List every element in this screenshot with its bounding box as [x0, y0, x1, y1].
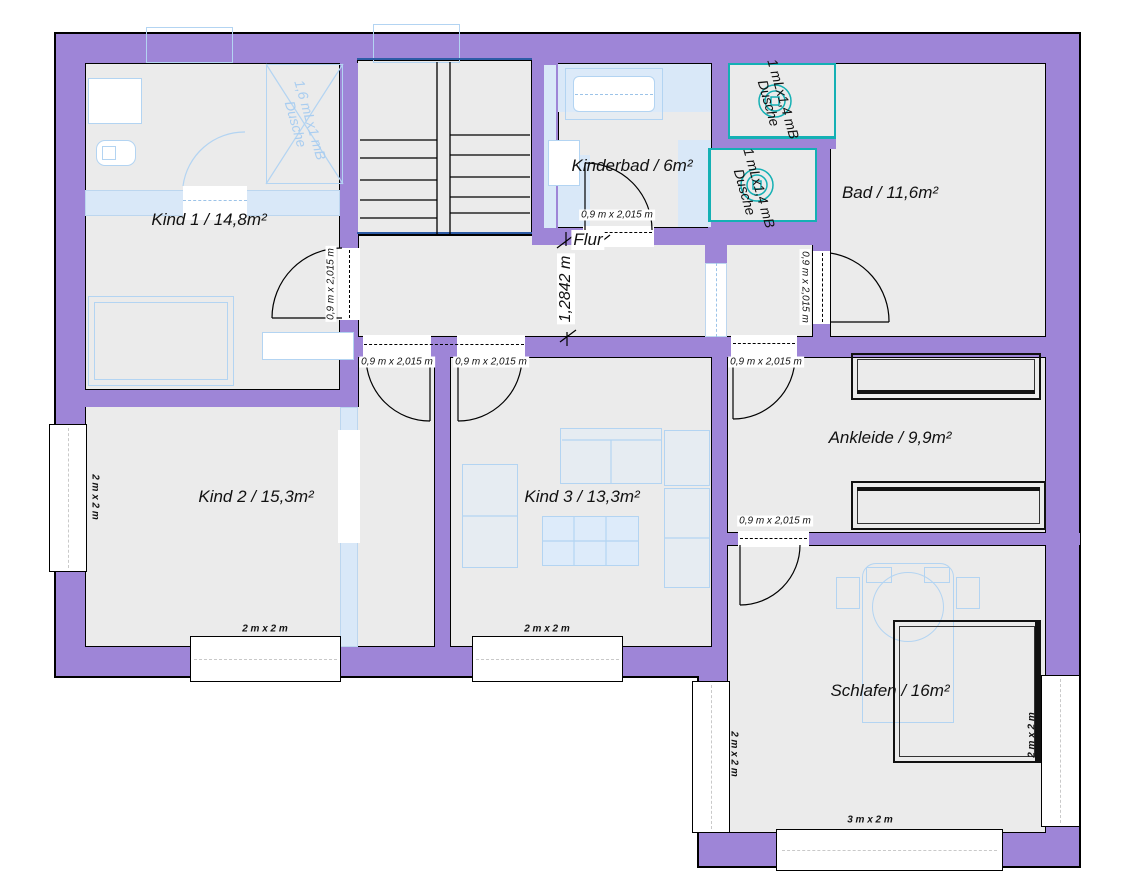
window-size-label: 2 m x 2 m [242, 624, 288, 635]
room-label-schlafen: Schlafen / 16m² [830, 681, 949, 701]
door-size-label: 0,9 m x 2,015 m [453, 357, 529, 368]
window-size-label: 2 m x 2 m [729, 731, 740, 777]
door-size-label: 0,9 m x 2,015 m [579, 210, 655, 221]
room-label-kind1: Kind 1 / 14,8m² [151, 210, 266, 230]
room-label-kind3: Kind 3 / 13,3m² [524, 487, 639, 507]
room-label-ankleide: Ankleide / 9,9m² [829, 428, 952, 448]
room-label-kind2: Kind 2 / 15,3m² [198, 487, 313, 507]
door-size-label: 0,9 m x 2,015 m [800, 249, 811, 325]
room-label-bad: Bad / 11,6m² [842, 183, 938, 203]
door-size-label: 0,9 m x 2,015 m [737, 516, 813, 527]
window-size-label: 2 m x 2 m [1027, 712, 1038, 758]
door-size-label: 0,9 m x 2,015 m [728, 357, 804, 368]
floor-plan: Kind 1 / 14,8m² Kinderbad / 6m² Bad / 11… [0, 0, 1137, 891]
window-size-label: 3 m x 2 m [847, 815, 893, 826]
window-size-label: 2 m x 2 m [90, 474, 101, 520]
door-size-label: 0,9 m x 2,015 m [326, 246, 337, 322]
window-size-label: 2 m x 2 m [524, 624, 570, 635]
flur-width-dimension: 1,2842 m [557, 254, 575, 325]
room-label-flur: Flur [571, 230, 604, 250]
room-label-kinderbad: Kinderbad / 6m² [572, 156, 693, 176]
linework [0, 0, 1137, 891]
door-size-label: 0,9 m x 2,015 m [359, 357, 435, 368]
